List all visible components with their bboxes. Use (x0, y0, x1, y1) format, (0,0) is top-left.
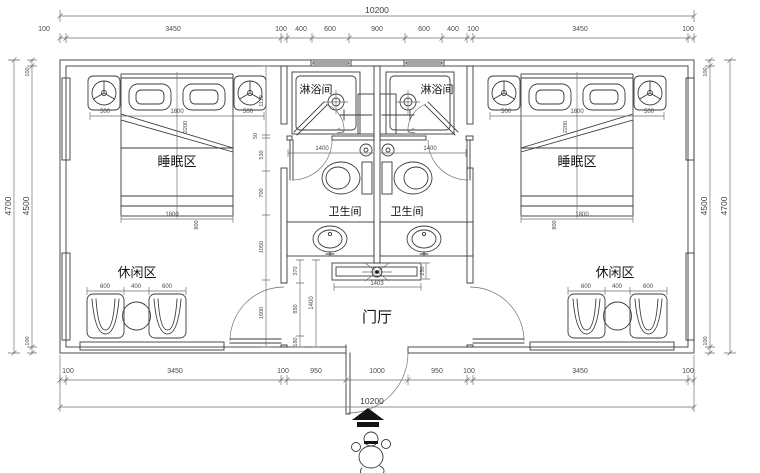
svg-text:100: 100 (25, 336, 31, 345)
svg-text:100: 100 (463, 368, 475, 375)
svg-text:4700: 4700 (3, 196, 13, 215)
wall-radiator-icon (686, 78, 694, 160)
toilet-tank (362, 162, 372, 194)
svg-text:100: 100 (25, 67, 31, 76)
toilet-icon (394, 162, 432, 194)
svg-text:1000: 1000 (369, 368, 385, 375)
svg-text:3450: 3450 (572, 368, 588, 375)
svg-text:400: 400 (131, 284, 142, 290)
svg-text:100: 100 (682, 26, 694, 33)
svg-text:370: 370 (293, 266, 299, 275)
label-sleep-left: 睡眠区 (157, 154, 196, 169)
svg-text:530: 530 (259, 150, 265, 159)
svg-text:1800: 1800 (575, 212, 589, 218)
label-toilet-left: 卫生间 (329, 204, 362, 218)
svg-text:600: 600 (418, 26, 430, 33)
svg-text:1110: 1110 (259, 95, 265, 106)
svg-text:100: 100 (38, 26, 50, 33)
svg-text:400: 400 (447, 26, 459, 33)
label-shower-right: 淋浴间 (421, 83, 454, 96)
wall-radiator-icon (686, 253, 694, 340)
svg-text:700: 700 (259, 188, 265, 197)
shower-mixer-icon (382, 110, 414, 120)
svg-text:100: 100 (682, 368, 694, 375)
label-shower-left: 淋浴间 (300, 83, 333, 96)
label-sleep-right: 睡眠区 (557, 154, 596, 169)
svg-text:100: 100 (703, 336, 709, 345)
pillow-icon (183, 84, 225, 110)
window-sill-icon (311, 60, 351, 66)
svg-text:100: 100 (62, 368, 74, 375)
svg-text:950: 950 (310, 368, 322, 375)
svg-text:3450: 3450 (165, 26, 181, 33)
door-swing-arc (230, 287, 284, 341)
svg-text:100: 100 (275, 26, 287, 33)
toilet-tank (382, 162, 392, 194)
svg-text:1050: 1050 (259, 241, 265, 253)
svg-text:1600: 1600 (259, 307, 265, 319)
toilet-icon (322, 162, 360, 194)
svg-text:500: 500 (100, 109, 111, 115)
svg-text:4500: 4500 (699, 196, 709, 215)
svg-text:1403: 1403 (370, 281, 384, 287)
svg-text:400: 400 (612, 284, 623, 290)
svg-text:3450: 3450 (572, 26, 588, 33)
label-leisure-left: 休闲区 (117, 265, 156, 280)
svg-text:100: 100 (277, 368, 289, 375)
label-toilet-right: 卫生间 (391, 204, 424, 218)
baseboard-radiator-icon (80, 342, 224, 350)
paper-holder-icon (382, 144, 394, 156)
svg-text:100: 100 (703, 67, 709, 76)
svg-text:1800: 1800 (170, 109, 184, 115)
svg-text:2200: 2200 (183, 121, 189, 133)
svg-text:4500: 4500 (21, 196, 31, 215)
shower-tray (292, 72, 360, 134)
svg-text:600: 600 (100, 284, 111, 290)
pillow-icon (583, 84, 625, 110)
svg-text:1800: 1800 (570, 109, 584, 115)
svg-text:2200: 2200 (563, 121, 569, 133)
svg-text:900: 900 (371, 26, 383, 33)
entrance-arrow-icon (352, 408, 384, 420)
room-labels: 睡眠区 睡眠区 淋浴间 淋浴间 卫生间 卫生间 休闲区 休闲区 门厅 (117, 83, 634, 326)
svg-text:180: 180 (293, 337, 299, 346)
floor-plan-page: 10200 100 3450 100 400 600 900 600 400 1… (0, 0, 760, 473)
svg-text:850: 850 (293, 304, 299, 313)
svg-text:500: 500 (644, 109, 655, 115)
svg-text:600: 600 (162, 284, 173, 290)
side-table-icon (123, 302, 151, 330)
person-figure-icon (352, 432, 391, 473)
svg-text:600: 600 (324, 26, 336, 33)
svg-text:1400: 1400 (423, 146, 437, 152)
svg-text:250: 250 (420, 266, 426, 275)
shower-door-arc (408, 104, 426, 133)
svg-text:500: 500 (243, 109, 254, 115)
svg-text:500: 500 (501, 109, 512, 115)
svg-text:950: 950 (431, 368, 443, 375)
label-leisure-right: 休闲区 (595, 265, 634, 280)
svg-text:50: 50 (253, 133, 259, 139)
dim-top-total: 10200 (365, 5, 389, 15)
door-swing-arc (470, 287, 524, 341)
dim-bottom-total: 10200 (360, 396, 384, 406)
paper-holder-icon (360, 144, 372, 156)
svg-text:4700: 4700 (719, 196, 729, 215)
svg-text:1800: 1800 (165, 212, 179, 218)
svg-text:400: 400 (295, 26, 307, 33)
shower-valve-wall (380, 94, 396, 134)
right-bedroom (470, 72, 667, 343)
label-foyer: 门厅 (362, 309, 392, 326)
pillow-icon (529, 84, 571, 110)
baseboard-radiator-icon (530, 342, 674, 350)
pillow-icon (129, 84, 171, 110)
svg-text:100: 100 (467, 26, 479, 33)
left-bedroom (87, 72, 284, 343)
window-sill-icon (404, 60, 444, 66)
svg-text:800: 800 (194, 220, 200, 229)
svg-text:800: 800 (552, 220, 558, 229)
svg-text:600: 600 (581, 284, 592, 290)
svg-text:600: 600 (643, 284, 654, 290)
floor-plan-canvas: 10200 100 3450 100 400 600 900 600 400 1… (0, 0, 760, 473)
svg-text:1400: 1400 (315, 146, 329, 152)
svg-text:3450: 3450 (167, 368, 183, 375)
svg-text:1400: 1400 (309, 296, 315, 310)
side-table-icon (604, 302, 632, 330)
